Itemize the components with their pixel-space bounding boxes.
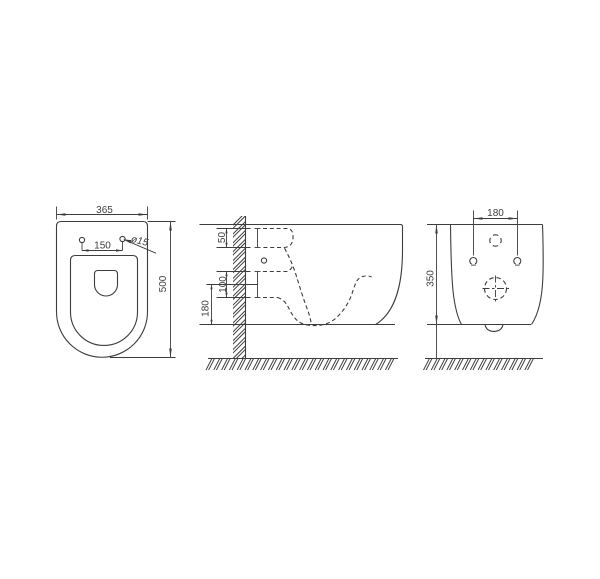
svg-text:500: 500 xyxy=(158,275,169,292)
svg-text:180: 180 xyxy=(201,300,212,317)
svg-text:50: 50 xyxy=(217,232,228,244)
svg-text:150: 150 xyxy=(94,240,111,251)
svg-text:365: 365 xyxy=(96,205,113,216)
svg-text:180: 180 xyxy=(487,208,504,219)
svg-text:100: 100 xyxy=(218,276,229,293)
svg-text:ø15: ø15 xyxy=(130,234,150,249)
svg-text:350: 350 xyxy=(426,270,437,287)
